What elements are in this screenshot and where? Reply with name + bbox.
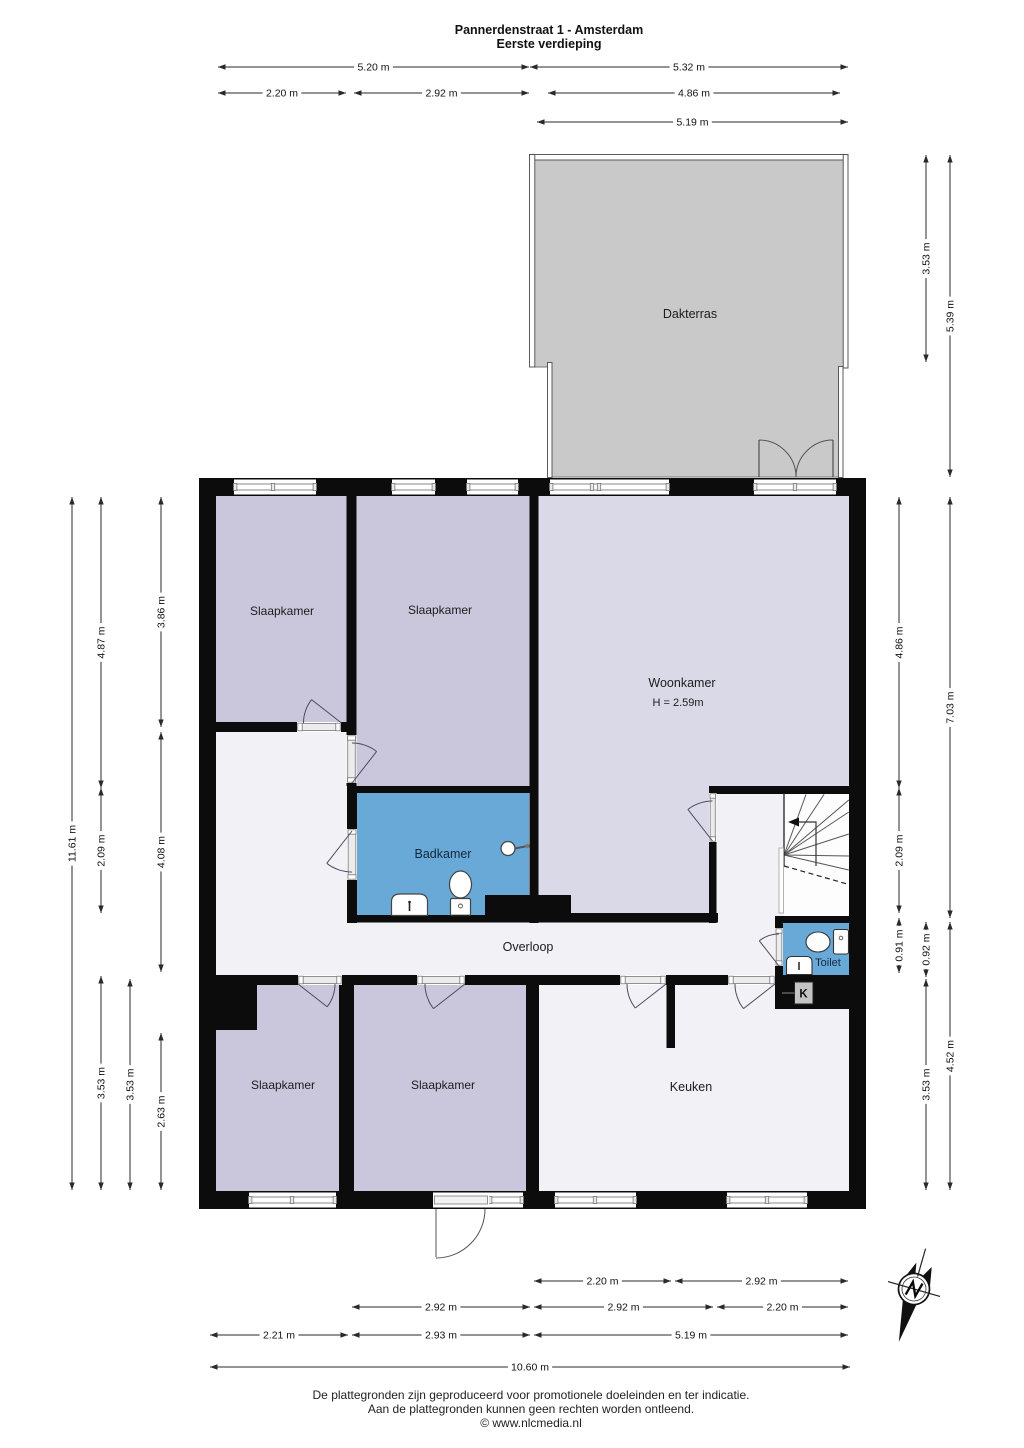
svg-text:Pannerdenstraat 1 - Amsterdam: Pannerdenstraat 1 - Amsterdam	[455, 23, 644, 37]
svg-text:De plattegronden zijn geproduc: De plattegronden zijn geproduceerd voor …	[313, 1388, 750, 1402]
svg-text:3.53 m: 3.53 m	[921, 242, 933, 274]
svg-text:2.21 m: 2.21 m	[263, 1330, 295, 1342]
svg-text:2.92 m: 2.92 m	[425, 88, 457, 100]
svg-text:Slaapkamer: Slaapkamer	[251, 1078, 315, 1092]
svg-text:0.91 m: 0.91 m	[894, 929, 906, 961]
svg-text:10.60 m: 10.60 m	[511, 1362, 549, 1374]
svg-text:4.87 m: 4.87 m	[96, 626, 108, 658]
svg-text:0.92 m: 0.92 m	[921, 933, 933, 965]
svg-text:Toilet: Toilet	[815, 957, 841, 969]
svg-text:4.86 m: 4.86 m	[894, 626, 906, 658]
svg-text:Aan de plattegronden kunnen ge: Aan de plattegronden kunnen geen rechten…	[368, 1402, 694, 1416]
svg-text:5.19 m: 5.19 m	[675, 1330, 707, 1342]
svg-text:2.63 m: 2.63 m	[156, 1095, 168, 1127]
svg-text:Woonkamer: Woonkamer	[648, 676, 715, 690]
svg-text:5.39 m: 5.39 m	[945, 300, 957, 332]
svg-text:5.19 m: 5.19 m	[676, 117, 708, 129]
svg-text:2.92 m: 2.92 m	[745, 1276, 777, 1288]
svg-text:3.53 m: 3.53 m	[125, 1068, 137, 1100]
svg-text:2.20 m: 2.20 m	[766, 1302, 798, 1314]
svg-text:Slaapkamer: Slaapkamer	[411, 1078, 475, 1092]
svg-text:4.52 m: 4.52 m	[945, 1040, 957, 1072]
svg-text:4.08 m: 4.08 m	[156, 836, 168, 868]
svg-text:2.93 m: 2.93 m	[425, 1330, 457, 1342]
svg-text:2.09 m: 2.09 m	[96, 834, 108, 866]
svg-text:11.61 m: 11.61 m	[67, 825, 79, 862]
svg-text:2.20 m: 2.20 m	[266, 88, 298, 100]
svg-text:Keuken: Keuken	[670, 1080, 712, 1094]
svg-text:3.53 m: 3.53 m	[96, 1067, 108, 1099]
svg-text:2.20 m: 2.20 m	[586, 1276, 618, 1288]
svg-text:3.86 m: 3.86 m	[156, 596, 168, 628]
svg-text:5.32 m: 5.32 m	[673, 62, 705, 74]
svg-text:4.86 m: 4.86 m	[678, 88, 710, 100]
svg-text:Dakterras: Dakterras	[663, 307, 717, 321]
svg-text:5.20 m: 5.20 m	[357, 62, 389, 74]
svg-text:3.53 m: 3.53 m	[921, 1068, 933, 1100]
svg-text:Eerste verdieping: Eerste verdieping	[497, 37, 602, 51]
svg-text:H = 2.59m: H = 2.59m	[652, 697, 703, 709]
svg-text:Slaapkamer: Slaapkamer	[250, 604, 314, 618]
svg-text:2.92 m: 2.92 m	[607, 1302, 639, 1314]
svg-text:Slaapkamer: Slaapkamer	[408, 603, 472, 617]
svg-text:2.09 m: 2.09 m	[894, 834, 906, 866]
svg-text:2.92 m: 2.92 m	[425, 1302, 457, 1314]
svg-text:7.03 m: 7.03 m	[945, 691, 957, 723]
svg-text:Overloop: Overloop	[503, 940, 554, 954]
svg-text:Badkamer: Badkamer	[415, 847, 472, 861]
svg-text:© www.nlcmedia.nl: © www.nlcmedia.nl	[480, 1416, 582, 1430]
svg-text:K: K	[799, 989, 808, 1001]
